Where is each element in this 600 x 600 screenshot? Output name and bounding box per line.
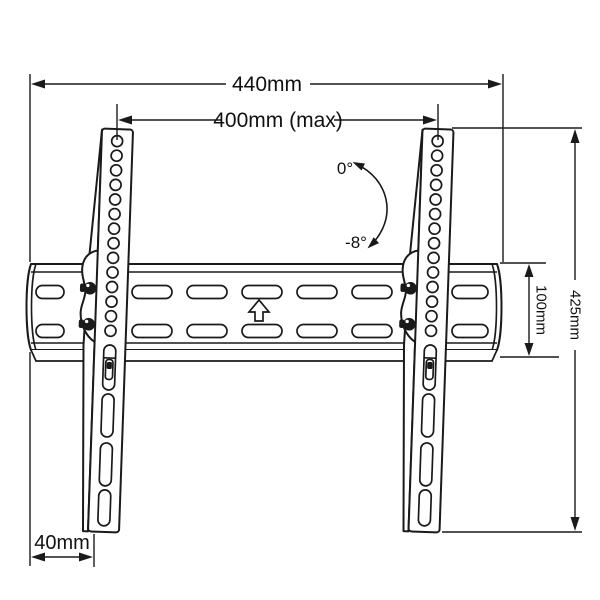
dim-arrowhead-icon (118, 116, 132, 125)
wall-slot (297, 325, 337, 338)
dimension-side-offset: 40mm (31, 532, 94, 567)
tilt-range-annotation: 0° -8° (337, 159, 387, 252)
dim-arrowhead-icon (31, 80, 45, 89)
wall-slot (352, 286, 392, 299)
wall-slot (242, 286, 282, 299)
dim-label-plate-height: 100mm (533, 285, 550, 335)
wall-slot (36, 286, 64, 299)
mount-dimension-diagram: 440mm 400mm (max) 425mm 100mm 40mm (0, 0, 600, 600)
wall-slot (132, 286, 172, 299)
dim-label-max-mounting-width: 400mm (max) (213, 109, 343, 132)
wall-slot (452, 286, 488, 299)
wall-slot (352, 325, 392, 338)
dim-arrowhead-icon (423, 116, 437, 125)
tilt-upper-label: 0° (337, 159, 353, 178)
tilt-arrowhead-icon (353, 162, 366, 171)
wall-slot (36, 325, 64, 338)
dim-arrowhead-icon (571, 129, 580, 143)
diagram-canvas: 440mm 400mm (max) 425mm 100mm 40mm (0, 0, 600, 600)
wall-slot (132, 325, 172, 338)
wall-slot (452, 325, 488, 338)
dim-arrowhead-icon (488, 80, 502, 89)
dim-arrowhead-icon (525, 264, 534, 277)
dimension-plate-height: 100mm (500, 263, 559, 357)
dim-arrowhead-icon (525, 343, 534, 356)
dim-label-side-offset: 40mm (34, 532, 90, 554)
dim-label-overall-width: 440mm (232, 73, 302, 96)
wall-slot (242, 325, 282, 338)
dimension-max-mounting-width: 400mm (max) (117, 104, 438, 140)
wall-slot (187, 286, 227, 299)
tilt-lower-label: -8° (345, 233, 367, 252)
wall-slot (187, 325, 227, 338)
dim-arrowhead-icon (571, 517, 580, 531)
dim-label-overall-height: 425mm (567, 290, 584, 340)
wall-slot (297, 286, 337, 299)
